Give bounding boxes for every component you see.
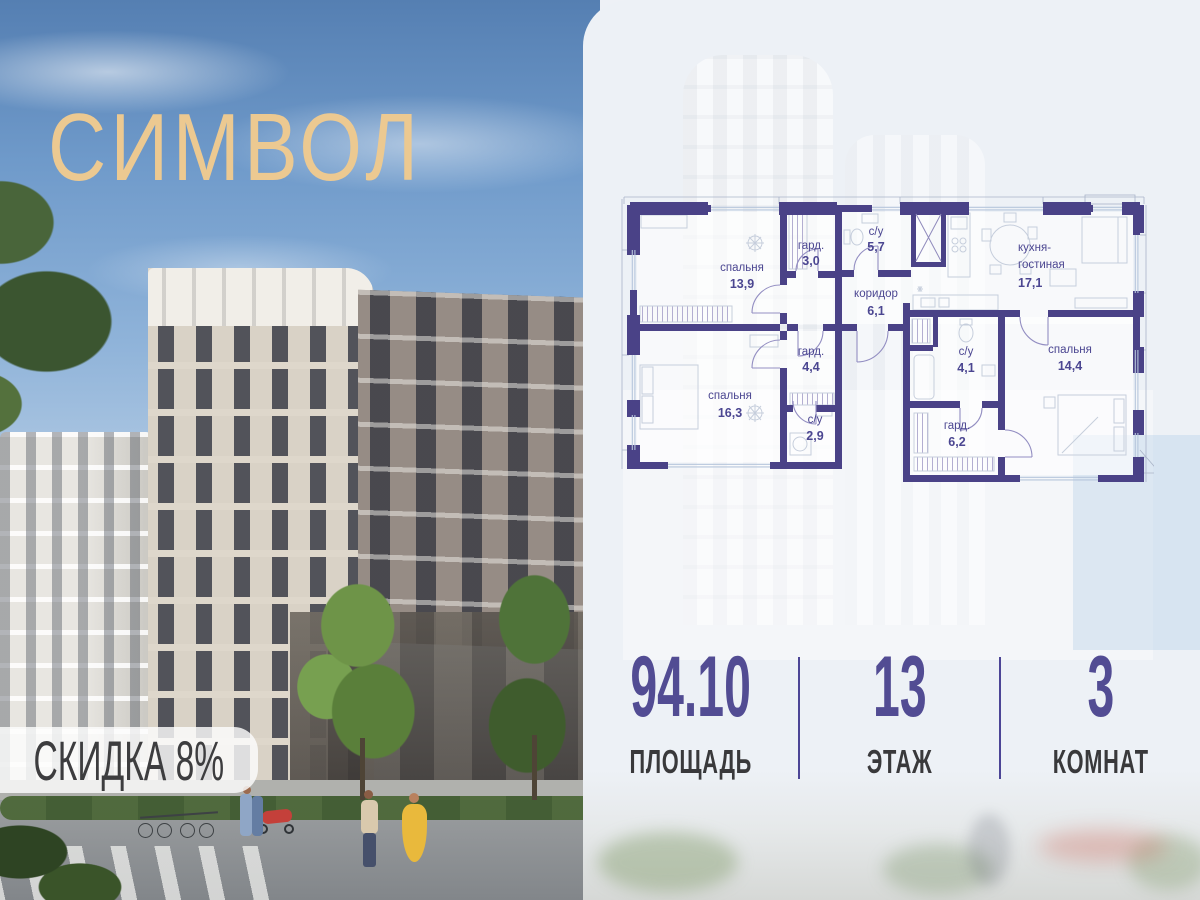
room-label-bedroom1-name: спальня bbox=[720, 262, 764, 274]
discount-badge-text: СКИДКА 8% bbox=[34, 728, 225, 793]
discount-badge: СКИДКА 8% bbox=[0, 727, 258, 793]
listing-card[interactable]: СИМВОЛ СКИДКА 8% bbox=[0, 0, 1200, 900]
haze-red-car bbox=[1038, 830, 1168, 862]
room-label-wardrobe1-area: 3,0 bbox=[802, 254, 819, 268]
room-label-bath2-name: с/у bbox=[808, 414, 823, 426]
info-panel: спальня 13,9 гард. 3,0 с/у 5,7 коридор 6… bbox=[583, 0, 1200, 900]
stat-floor: 13 ЭТАЖ bbox=[800, 645, 999, 795]
brand-logo: СИМВОЛ bbox=[48, 100, 494, 224]
stat-floor-value: 13 bbox=[852, 645, 948, 729]
room-label-bath1-name: с/у bbox=[869, 226, 884, 238]
room-label-bedroom1-area: 13,9 bbox=[730, 277, 754, 291]
room-label-bath3-name: с/у bbox=[959, 346, 974, 358]
stat-area-label-text: ПЛОЩАДЬ bbox=[629, 743, 751, 781]
stat-area-value: 94.10 bbox=[583, 645, 798, 729]
tree-trunk bbox=[532, 735, 537, 800]
stat-area-label: ПЛОЩАДЬ bbox=[598, 743, 783, 781]
haze-greenery bbox=[598, 832, 738, 892]
room-label-bath3-area: 4,1 bbox=[957, 361, 974, 375]
tree-center bbox=[288, 552, 443, 797]
floor-plan: спальня 13,9 гард. 3,0 с/у 5,7 коридор 6… bbox=[618, 191, 1154, 491]
room-label-bath1-area: 5,7 bbox=[867, 240, 884, 254]
stat-floor-value-text: 13 bbox=[873, 645, 927, 729]
pedestrian-couple bbox=[240, 788, 270, 848]
stat-floor-label: ЭТАЖ bbox=[850, 743, 949, 781]
room-label-wardrobe1-name: гард. bbox=[798, 240, 824, 252]
room-label-wardrobe2-name: гард. bbox=[798, 346, 824, 358]
room-label-wardrobe3-name: гард. bbox=[944, 420, 970, 432]
room-label-corridor-area: 6,1 bbox=[867, 304, 884, 318]
stat-rooms-label: КОМНАТ bbox=[1028, 743, 1173, 781]
stat-floor-label-text: ЭТАЖ bbox=[867, 743, 932, 781]
room-label-bedroom2-name: спальня bbox=[708, 390, 752, 402]
room-label-wardrobe3-area: 6,2 bbox=[948, 435, 965, 449]
stat-rooms-value-text: 3 bbox=[1087, 645, 1114, 729]
room-label-kitchen-name1: кухня- bbox=[1018, 242, 1051, 254]
stat-area: 94.10 ПЛОЩАДЬ bbox=[583, 645, 798, 795]
stats-row: 94.10 ПЛОЩАДЬ 13 ЭТАЖ 3 bbox=[583, 645, 1200, 795]
room-label-corridor-name: коридор bbox=[854, 288, 898, 300]
haze-pedestrians bbox=[968, 814, 1010, 886]
stat-area-value-text: 94.10 bbox=[630, 645, 751, 729]
room-label-kitchen-name2: гостиная bbox=[1018, 259, 1065, 271]
stat-rooms-value: 3 bbox=[1077, 645, 1125, 729]
room-label-kitchen-area: 17,1 bbox=[1018, 276, 1042, 290]
pedestrian-yellow-dress bbox=[400, 793, 430, 885]
room-label-bath2-area: 2,9 bbox=[806, 429, 823, 443]
stat-rooms: 3 КОМНАТ bbox=[1001, 645, 1200, 795]
pedestrian-beige-jacket bbox=[360, 790, 380, 885]
room-label-bedroom3-area: 14,4 bbox=[1058, 359, 1082, 373]
room-label-bedroom3-name: спальня bbox=[1048, 344, 1092, 356]
foreground-leaves bbox=[0, 812, 160, 900]
main-building-top-floors bbox=[148, 268, 374, 326]
tree-right bbox=[462, 540, 600, 805]
room-label-bedroom2-area: 16,3 bbox=[718, 406, 742, 420]
building-photo: СИМВОЛ СКИДКА 8% bbox=[0, 0, 600, 900]
brand-logo-text: СИМВОЛ bbox=[48, 100, 422, 196]
stat-rooms-label-text: КОМНАТ bbox=[1053, 743, 1149, 781]
room-label-wardrobe2-area: 4,4 bbox=[802, 360, 819, 374]
